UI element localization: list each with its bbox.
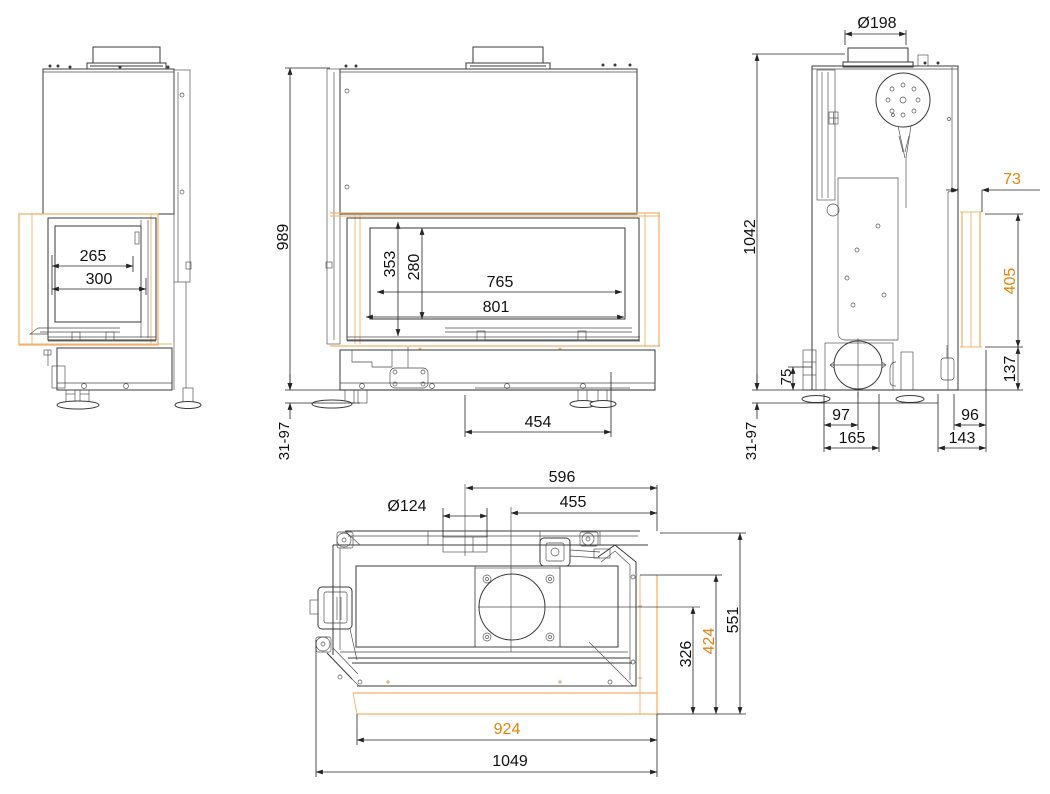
air-inlet <box>825 338 893 398</box>
dim-989: 989 <box>275 224 292 251</box>
dims-width <box>316 640 657 777</box>
dim-75: 75 <box>778 369 795 386</box>
technical-drawing: 265 300 <box>0 0 1050 794</box>
dim-96: 96 <box>961 407 979 424</box>
dim-596: 596 <box>549 469 576 486</box>
back-rail <box>333 531 648 545</box>
dim-765: 765 <box>487 274 514 291</box>
dim-73: 73 <box>1003 171 1021 188</box>
dim-31-97: 31-97 <box>276 422 293 460</box>
top-plan-view: 596 455 Ø124 326 424 551 924 <box>310 469 746 777</box>
dim-455: 455 <box>560 494 587 511</box>
left-frame-strip <box>326 69 340 344</box>
flue-stub <box>466 47 550 69</box>
body-upper <box>43 69 174 214</box>
adjustable-feet <box>802 350 924 403</box>
adjustable-feet <box>312 390 616 408</box>
dim-1049: 1049 <box>492 753 528 770</box>
dim-424: 424 <box>701 628 718 655</box>
base-pedestal <box>340 347 655 390</box>
dim-1042: 1042 <box>742 219 759 255</box>
dim-143: 143 <box>949 430 976 447</box>
dim-353: 353 <box>382 251 399 278</box>
body-outline <box>333 545 630 658</box>
front-view: 989 353 280 765 801 454 31-97 <box>275 47 660 460</box>
dim-326: 326 <box>678 641 695 668</box>
side-channel <box>817 70 839 216</box>
body-upper <box>340 69 637 214</box>
dim-31-97: 31-97 <box>743 422 760 460</box>
front-edge-panel <box>941 67 958 390</box>
dim-551: 551 <box>725 607 742 634</box>
dim-165: 165 <box>839 430 866 447</box>
dim-405: 405 <box>1002 268 1019 295</box>
side-glass-view: 265 300 <box>19 47 201 409</box>
flue-stub <box>87 47 166 69</box>
dim-280: 280 <box>406 254 423 281</box>
dim-300: 300 <box>86 271 113 288</box>
dim-924: 924 <box>494 721 521 738</box>
handle-ledge <box>30 328 156 341</box>
drawing-canvas: 265 300 <box>0 0 1050 794</box>
dim-124: Ø124 <box>387 498 426 515</box>
handle-ledge <box>445 328 632 340</box>
flue-plate <box>475 568 560 647</box>
base-pedestal <box>44 348 172 390</box>
adjustable-feet <box>57 388 201 409</box>
glass-edge-orange <box>960 212 982 347</box>
front-frame-band <box>327 648 636 686</box>
dim-265: 265 <box>80 248 107 265</box>
dim-137: 137 <box>1002 356 1019 383</box>
body <box>812 66 958 390</box>
dim-198: Ø198 <box>857 15 896 32</box>
dim-198-lines <box>845 30 906 45</box>
dim-801: 801 <box>483 299 510 316</box>
dim-73-lines <box>946 190 1040 212</box>
door-latch <box>540 538 610 566</box>
flue-stub <box>843 48 913 67</box>
dim-1042-lines <box>752 54 845 390</box>
dim-97: 97 <box>832 407 850 424</box>
inner-panel <box>838 114 898 341</box>
glass-outline-orange <box>353 575 657 714</box>
counterweight-pulley <box>876 73 930 208</box>
side-panel <box>174 70 191 390</box>
dim-454: 454 <box>525 414 552 431</box>
side-service-view: Ø198 <box>742 15 1040 460</box>
